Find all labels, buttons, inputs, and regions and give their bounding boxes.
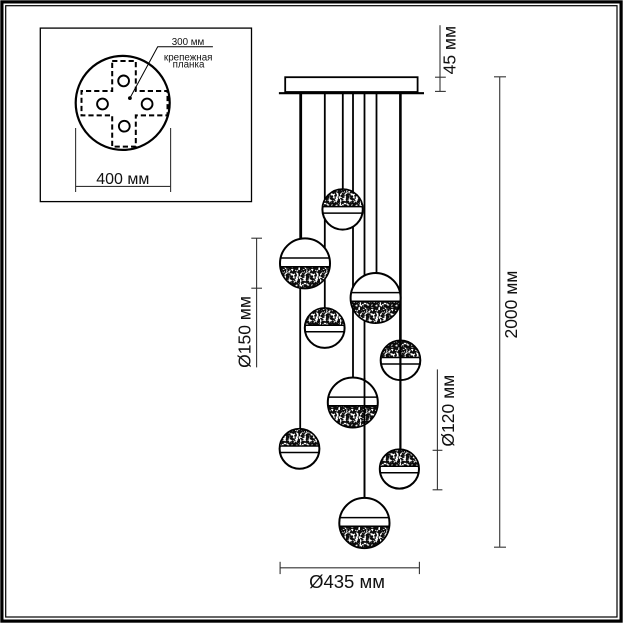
svg-text:Ø435 мм: Ø435 мм xyxy=(309,571,385,592)
svg-text:400 мм: 400 мм xyxy=(96,171,149,188)
svg-text:2000 мм: 2000 мм xyxy=(501,271,521,339)
svg-text:планка: планка xyxy=(173,60,205,71)
svg-text:300 мм: 300 мм xyxy=(172,37,205,48)
svg-text:Ø150 мм: Ø150 мм xyxy=(234,296,254,368)
svg-text:45 мм: 45 мм xyxy=(440,26,460,74)
svg-text:Ø120 мм: Ø120 мм xyxy=(438,375,458,447)
